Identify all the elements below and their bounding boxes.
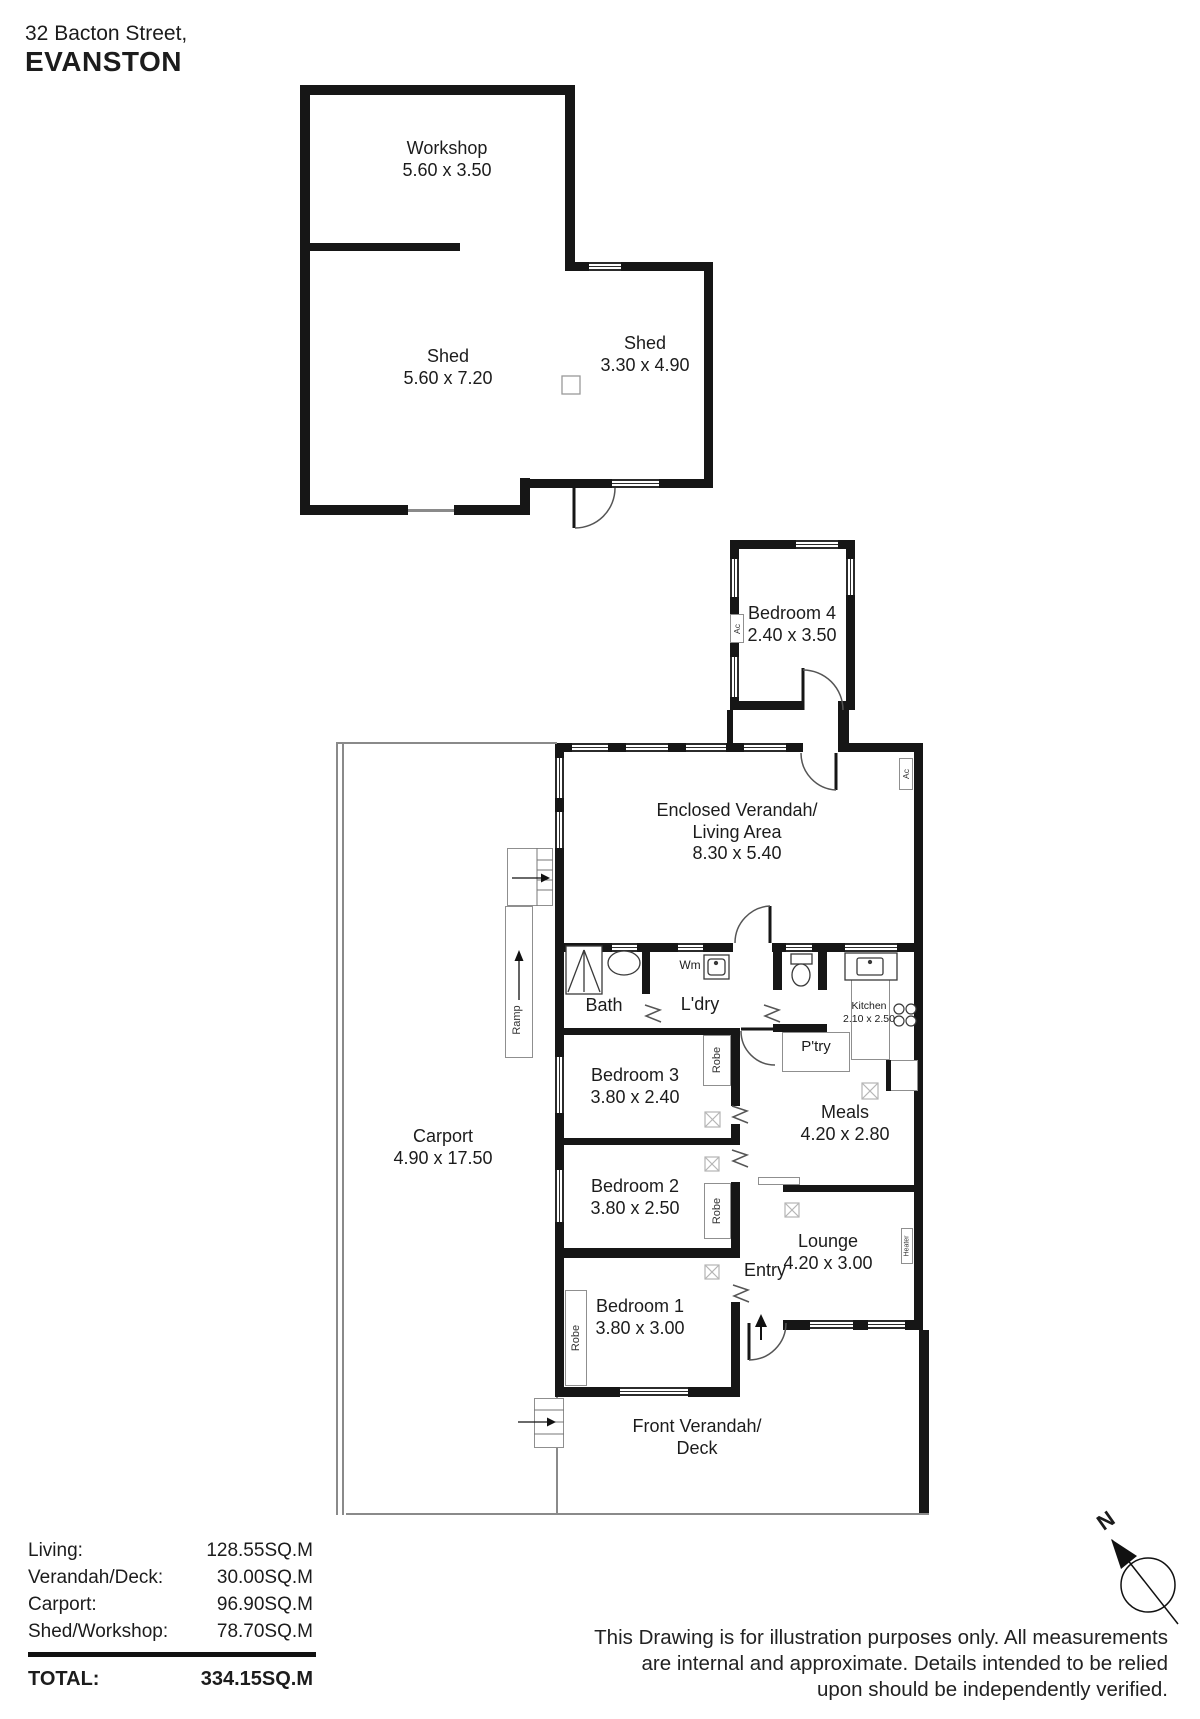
front-steps-arrow xyxy=(518,1418,556,1427)
door-verandah-hall xyxy=(735,906,770,943)
basin xyxy=(608,951,640,975)
summary-divider xyxy=(28,1652,316,1657)
room-label-meals: Meals4.20 x 2.80 xyxy=(800,1102,889,1145)
label-robe: Robe xyxy=(570,1325,582,1351)
stairs-arrow xyxy=(512,874,550,883)
door-entry xyxy=(749,1323,786,1360)
total-label: TOTAL: xyxy=(28,1668,99,1690)
label-ramp: Ramp xyxy=(511,1005,523,1034)
compass xyxy=(1111,1539,1178,1624)
label-heater: Heater xyxy=(904,1235,911,1256)
room-label-shed-small: Shed3.30 x 4.90 xyxy=(600,333,689,376)
label-ac: Ac xyxy=(901,769,911,779)
room-label-pantry: P'try xyxy=(801,1038,831,1056)
room-label-bath: Bath xyxy=(585,995,622,1017)
room-label-entry: Entry xyxy=(744,1260,786,1282)
summary-value: 96.90SQ.M xyxy=(217,1594,313,1616)
room-label-shed-large: Shed5.60 x 7.20 xyxy=(403,346,492,389)
summary-value: 128.55SQ.M xyxy=(206,1540,313,1562)
room-label-bedroom2: Bedroom 23.80 x 2.50 xyxy=(590,1176,679,1219)
toilet xyxy=(791,954,812,986)
room-label-bedroom4: Bedroom 42.40 x 3.50 xyxy=(747,603,836,646)
door-hall-meals xyxy=(741,1029,775,1065)
symbols-layer xyxy=(0,0,1200,1719)
room-label-bedroom1: Bedroom 13.80 x 3.00 xyxy=(595,1296,684,1339)
floorplan-page: 32 Bacton Street, EVANSTON xyxy=(0,0,1200,1719)
summary-total-row: TOTAL: 334.15SQ.M xyxy=(28,1668,313,1691)
summary-row: Carport: 96.90SQ.M xyxy=(28,1594,313,1616)
entry-arrow xyxy=(755,1314,767,1340)
summary-label: Shed/Workshop: xyxy=(28,1621,168,1642)
room-label-kitchen: Kitchen2.10 x 2.50 xyxy=(843,1000,895,1025)
label-wm: Wm xyxy=(679,958,700,972)
summary-row: Verandah/Deck: 30.00SQ.M xyxy=(28,1567,313,1589)
summary-value: 78.70SQ.M xyxy=(217,1621,313,1643)
laundry-trough xyxy=(704,955,729,979)
stove xyxy=(894,1004,916,1026)
summary-label: Living: xyxy=(28,1540,83,1561)
shower xyxy=(566,946,602,994)
label-ac: Ac xyxy=(732,624,742,634)
label-robe: Robe xyxy=(711,1047,723,1073)
door-verandah-north xyxy=(801,753,836,790)
room-label-carport: Carport4.90 x 17.50 xyxy=(393,1126,492,1169)
door-shed xyxy=(574,488,615,528)
room-label-laundry: L'dry xyxy=(681,994,719,1016)
shed-post xyxy=(562,376,580,394)
room-label-lounge: Lounge4.20 x 3.00 xyxy=(783,1231,872,1274)
disclaimer-line: This Drawing is for illustration purpose… xyxy=(594,1626,1168,1650)
summary-value: 30.00SQ.M xyxy=(217,1567,313,1589)
ramp-arrow xyxy=(515,950,524,1000)
kitchen-sink xyxy=(845,953,897,980)
door-bedroom4 xyxy=(803,668,843,710)
room-label-workshop: Workshop5.60 x 3.50 xyxy=(402,138,491,181)
room-label-living: Enclosed Verandah/Living Area8.30 x 5.40 xyxy=(656,800,817,865)
summary-label: Verandah/Deck: xyxy=(28,1567,163,1588)
summary-row: Living: 128.55SQ.M xyxy=(28,1540,313,1562)
summary-label: Carport: xyxy=(28,1594,97,1615)
disclaimer-line: upon should be independently verified. xyxy=(817,1678,1168,1702)
summary-row: Shed/Workshop: 78.70SQ.M xyxy=(28,1621,313,1643)
room-label-front-verandah: Front Verandah/Deck xyxy=(632,1416,761,1459)
total-value: 334.15SQ.M xyxy=(201,1668,313,1691)
room-label-bedroom3: Bedroom 33.80 x 2.40 xyxy=(590,1065,679,1108)
label-robe: Robe xyxy=(711,1198,723,1224)
disclaimer-line: are internal and approximate. Details in… xyxy=(642,1652,1169,1676)
